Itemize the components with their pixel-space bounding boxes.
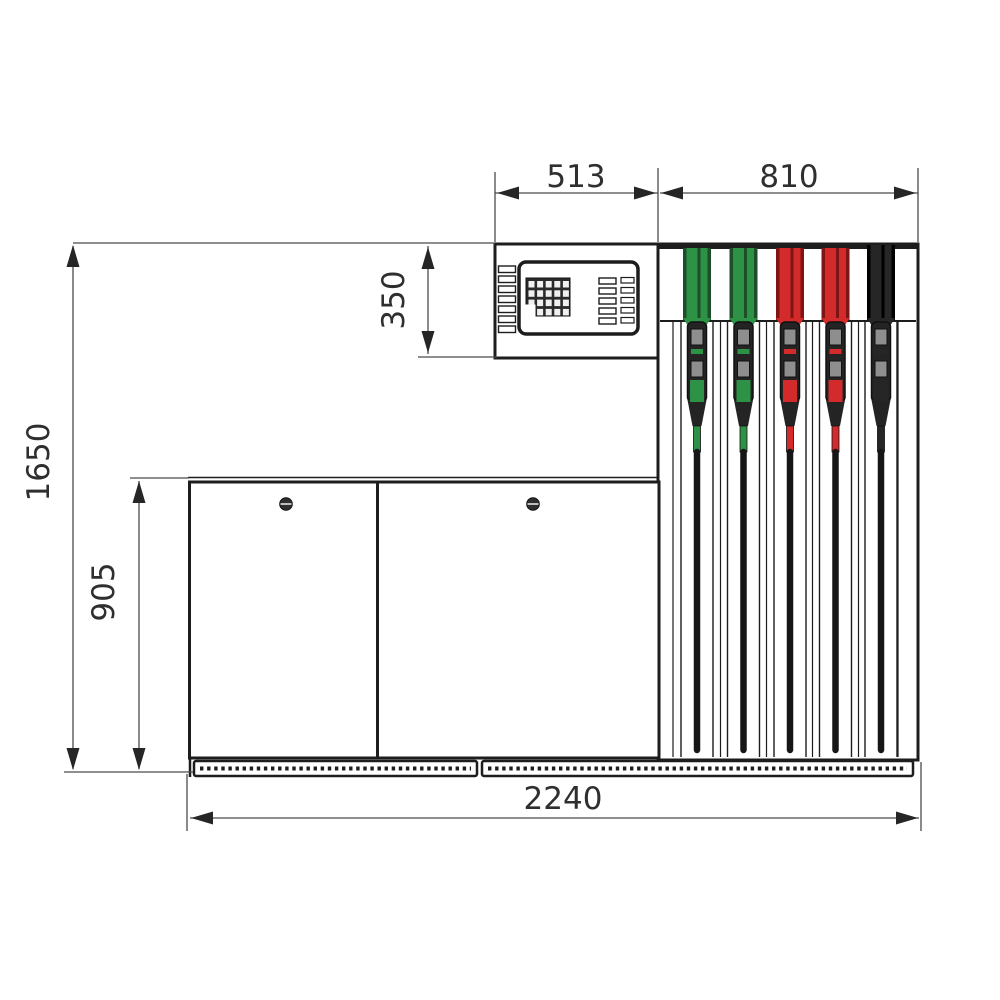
vent-grille: [499, 266, 516, 333]
dimension-nozzle-section-width: 810: [660, 159, 918, 242]
dimension-total-height: 1650: [21, 245, 193, 772]
nozzle-boot-green-2: [730, 248, 758, 326]
keypad-notch: [525, 305, 536, 318]
nozzle-boot-black-1: [867, 245, 895, 326]
keypad: [525, 278, 570, 317]
base-cabinet: [188, 478, 659, 759]
technical-drawing-page: 513 810 350 1650 905: [0, 0, 1000, 1000]
dimension-cabinet-height: 905: [86, 478, 189, 770]
dim-label-2240: 2240: [524, 781, 603, 817]
lock-icon-right: [527, 498, 540, 511]
dim-label-513: 513: [546, 159, 605, 195]
fuel-dispenser-drawing: 513 810 350 1650 905: [0, 0, 1000, 1000]
dim-label-810: 810: [759, 159, 818, 195]
dim-label-350: 350: [376, 270, 412, 329]
dimension-head-width: 513: [495, 159, 658, 242]
dim-label-1650: 1650: [21, 423, 57, 502]
base-plinth: [190, 758, 913, 777]
nozzle-boot-red-1: [776, 248, 804, 326]
dimension-head-height: 350: [73, 243, 497, 357]
nozzle-boot-green-1: [683, 248, 711, 326]
dim-label-905: 905: [86, 562, 122, 621]
cabinet-door-right: [378, 482, 660, 758]
display-panel: [499, 262, 639, 334]
lock-icon-left: [280, 498, 293, 511]
nozzle-boot-red-2: [822, 248, 850, 326]
cabinet-door-left: [190, 482, 378, 758]
